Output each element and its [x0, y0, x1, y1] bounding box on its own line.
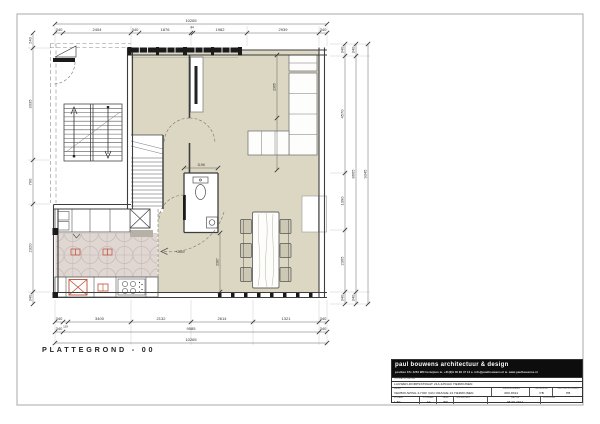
firm-name: paul bouwens architectuur & design	[395, 362, 579, 369]
onderdeel-label: ONDERDEEL	[456, 397, 487, 400]
client-value: LAUWEN-DORPSSTRAAT 21A 4254AC HERWIJNEN	[394, 382, 582, 387]
dim-label: 10265	[185, 337, 197, 342]
dim-label: 340	[351, 46, 356, 53]
client-row: LAUWEN-DORPSSTRAAT 21A 4254AC HERWIJNEN	[392, 381, 582, 387]
getekend-value: PB	[532, 391, 552, 396]
project-row: WERK VERBOUWING 2-HOF VAN ORANJE 24 HERW…	[392, 387, 582, 396]
dim-label: 340	[28, 294, 33, 301]
dim-label: 118	[63, 325, 68, 329]
dim-label: 44	[190, 26, 194, 30]
fase-value: BD	[439, 400, 453, 405]
wc-door-leaf	[183, 195, 186, 220]
dim-label: 9345	[363, 169, 368, 179]
dining-set	[241, 212, 292, 288]
dim-label: 2132	[157, 316, 167, 321]
client-label-row: OPDRACHTGEVER	[392, 377, 582, 381]
dim-label: 340	[56, 27, 63, 32]
sink-bowl	[58, 222, 69, 231]
wall-niche	[302, 196, 327, 232]
entry-door-leaf	[53, 58, 75, 62]
drawing-title: PLATTEGROND - 00	[42, 345, 155, 354]
dim-label: 2404	[93, 27, 103, 32]
dim-label: 1982	[216, 27, 226, 32]
dim-label: 9585	[187, 326, 197, 331]
dim-label: 2614	[218, 316, 228, 321]
doormat	[130, 230, 153, 237]
dim-label: 2387	[216, 258, 220, 266]
title-block: paul bouwens architectuur & design postb…	[391, 359, 583, 403]
chair	[241, 244, 252, 258]
dim-label: 2365	[273, 83, 277, 91]
werk-value: VERBOUWING 2-HOF VAN ORANJE 24 HERWIJNEN	[394, 391, 491, 396]
formaat-value: A3	[422, 400, 436, 405]
meta-row: SCHAAL 1:50 FORMAAT A3 FASE BD ONDERDEEL…	[392, 396, 582, 405]
dim-label: 340	[320, 316, 327, 321]
level-marker: +2600	[176, 250, 185, 254]
dim-label: 1196	[197, 163, 205, 167]
schaal-value: 1:50	[394, 400, 419, 405]
dim-label: 340	[351, 294, 356, 301]
chair	[241, 220, 252, 234]
dim-label: 340	[320, 326, 327, 331]
werknummer-value: 080-8321	[494, 391, 529, 396]
client-label: OPDRACHTGEVER	[394, 378, 582, 381]
dim-label: 3400	[95, 316, 105, 321]
dim-label: 340	[132, 27, 139, 32]
title-block-header: paul bouwens architectuur & design postb…	[392, 360, 582, 377]
wijziging-label: WIJZIGING	[543, 397, 582, 400]
dim-label: 3335	[28, 99, 33, 109]
dim-label: 1876	[161, 27, 171, 32]
dim-label: 340	[56, 326, 63, 331]
firm-contact: postbus 67c 4254 WN herwijnen m. +31(0)6…	[395, 371, 579, 374]
radiator	[191, 57, 204, 112]
dim-label: 8665	[351, 169, 356, 179]
chair	[280, 220, 291, 234]
dim-label: 340	[340, 294, 345, 301]
datum-value: 08 09 2014	[490, 400, 540, 405]
drawing-sheet: 340 2404 340 1876 44 1982 2939 340 10265…	[0, 0, 600, 424]
dim-label: 4570	[340, 109, 345, 119]
dim-label: 2365	[340, 256, 345, 266]
dim-label: 240	[28, 36, 33, 43]
chair	[280, 268, 291, 282]
gecontroleerd-value: PB	[555, 391, 582, 396]
chair	[241, 268, 252, 282]
dim-label: 10265	[185, 18, 197, 23]
sink-bowl	[58, 212, 69, 221]
dim-label: 1321	[282, 316, 292, 321]
dim-label: 340	[56, 316, 63, 321]
dim-label: 340	[340, 46, 345, 53]
duct-shaft	[130, 209, 153, 237]
dim-label: 790	[28, 178, 33, 185]
chair	[280, 244, 291, 258]
dim-label: 340	[320, 27, 327, 32]
dim-label: 2320	[28, 243, 33, 253]
dim-label: 2939	[279, 27, 289, 32]
dim-label: 1390	[340, 196, 345, 206]
